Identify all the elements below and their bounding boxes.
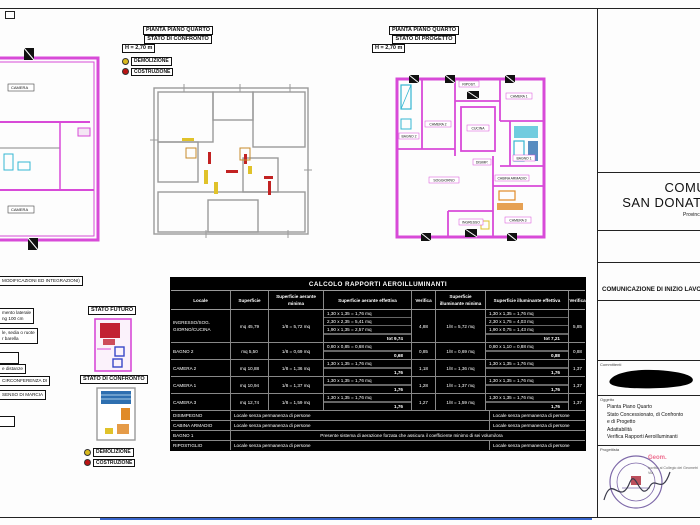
column-header: Superficie aerante effettiva [324, 291, 412, 309]
room-label-cabina-armadio: CABINA ARMADIO [497, 177, 526, 181]
legend-bottom: DEMOLIZIONE COSTRUZIONE [84, 446, 135, 467]
annotation-modifiche: MODIFICAZIONI ED INTEGRAZIONI) [0, 276, 83, 286]
plan-label-line2: STATO DI CONFRONTO [144, 35, 212, 44]
floorplan-confronto [148, 78, 316, 240]
plan-label-line1: PIANTA PIANO QUARTO [143, 26, 213, 35]
aero-table-title: CALCOLO RAPPORTI AEROILLUMINANTI [171, 278, 585, 291]
locale-cell: BAGNO 1 [171, 431, 231, 440]
plan-label-confronto: PIANTA PIANO QUARTO STATO DI CONFRONTO H… [122, 26, 234, 76]
annotation-b: le, sedia o ruoter barella [0, 328, 38, 344]
room-label-disimpegno: DISIMP. [476, 161, 488, 165]
table-row: RIPOSTIGLIOLocale senza permanenza di pe… [171, 441, 585, 450]
geom-name: Geom. [648, 455, 700, 461]
table-row: CABINA ARMADIOLocale senza permanenza di… [171, 421, 585, 431]
sheet-border-top [0, 8, 700, 9]
table-row: INGRESSO/SOG. GIORNO/CUCINAmq 45,791/8 =… [171, 310, 585, 343]
corner-mark-icon [5, 11, 15, 19]
oggetto-label: Oggetto [600, 397, 614, 402]
legend-costruzione-label: COSTRUZIONE [93, 459, 135, 468]
annotation-e: SENSO DI MARCIA [0, 390, 46, 400]
legend-demolizione: DEMOLIZIONE [84, 448, 135, 457]
table-row: CAMERA 1mq 10,941/8 = 1,37 mq1,30 x 1,35… [171, 377, 585, 394]
tb-divider [597, 230, 700, 231]
locale-cell: CAMERA 2 [171, 360, 231, 376]
pratica-title: COMUNICAZIONE DI INIZIO LAVORI [602, 286, 700, 293]
costruzione-dot-icon [84, 459, 91, 466]
room-label-camera: CAMERA [11, 207, 28, 212]
table-row: DISIMPEGNOLocale senza permanenza di per… [171, 411, 585, 421]
tb-divider [597, 172, 700, 173]
bottom-blue-line [100, 518, 592, 520]
column-header: Verifica [569, 291, 586, 309]
comune-header: COMUNE DI SAN DONATO MILANESE Provincia … [599, 180, 700, 218]
miniplan-stato-futuro [93, 317, 133, 373]
column-header: Superficie aerante minima [269, 291, 324, 309]
locale-cell: BAGNO 2 [171, 343, 231, 359]
room-label-camera1: CAMERA 1 [510, 95, 527, 99]
legend-demolizione-label: DEMOLIZIONE [131, 57, 172, 66]
room-label-camera2: CAMERA 2 [429, 123, 446, 127]
room-label-bagno1: BAGNO 1 [516, 157, 531, 161]
committenti-redaction [602, 366, 700, 392]
geom-info: Iscritto al Collegio dei Geometri Via [648, 466, 700, 476]
locale-cell: CAMERA 1 [171, 377, 231, 393]
tb-divider [597, 262, 700, 263]
tb-divider [597, 395, 700, 396]
table-row: CAMERA 2mq 10,881/8 = 1,36 mq1,30 x 1,35… [171, 360, 585, 377]
column-header: Locale [171, 291, 231, 309]
room-label-ripostiglio: RIPOST. [462, 83, 475, 87]
comune-line2: SAN DONATO MILANESE [599, 195, 700, 210]
annotation-a: mento lateraleng 100 cm [0, 308, 34, 324]
legend-costruzione: COSTRUZIONE [84, 459, 135, 468]
annotation-d: CIRCONFERENZA DI [0, 376, 50, 386]
legend-costruzione: COSTRUZIONE [122, 68, 234, 77]
column-header: Superficie [231, 291, 269, 309]
plan-label-line2: STATO DI PROGETTO [392, 35, 455, 44]
stato-confronto-label: STATO DI CONFRONTO [80, 375, 148, 384]
aero-table-body: INGRESSO/SOG. GIORNO/CUCINAmq 45,791/8 =… [171, 310, 585, 450]
oggetto-text: Pianta Piano Quarto Stato Concessionato,… [607, 404, 700, 442]
table-row: BAGNO 1Presente sistema di aerazione for… [171, 431, 585, 441]
plan-label-line3: H = 2,70 m [122, 44, 155, 53]
annotation-c: e distanze [0, 364, 26, 374]
room-label-soggiorno: SOGGIORNO [433, 179, 455, 183]
room-label-ingresso: INGRESSO [462, 221, 480, 225]
plan-label-line1: PIANTA PIANO QUARTO [389, 26, 459, 35]
room-label-bagno2: BAGNO 2 [401, 135, 416, 139]
miniplan-stato-confronto [95, 386, 137, 442]
plan-label-line3: H = 2,70 m [372, 44, 405, 53]
tb-divider [597, 445, 700, 446]
demolizione-dot-icon [84, 449, 91, 456]
locale-cell: CABINA ARMADIO [171, 421, 231, 430]
legend-costruzione-label: COSTRUZIONE [131, 68, 173, 77]
column-header: Superficie illuminante minima [436, 291, 486, 309]
annotation-small-box [0, 352, 19, 364]
progettista-stamp-icon [598, 452, 674, 514]
tb-divider [597, 360, 700, 361]
provincia-line: Provincia di Milano [599, 212, 700, 218]
demolizione-dot-icon [122, 58, 129, 65]
column-header: Superficie illuminante effettiva [486, 291, 569, 309]
locale-cell: DISIMPEGNO [171, 411, 231, 420]
comune-line1: COMUNE DI [599, 180, 700, 195]
aero-table: CALCOLO RAPPORTI AEROILLUMINANTI LocaleS… [170, 277, 586, 451]
room-label-cucina: CUCINA [472, 127, 486, 131]
table-row: CAMERA 3mq 12,741/8 = 1,59 mq1,30 x 1,35… [171, 394, 585, 411]
annotation-small-box2 [0, 416, 15, 427]
plan-label-progetto: PIANTA PIANO QUARTO STATO DI PROGETTO H … [372, 26, 476, 53]
costruzione-dot-icon [122, 68, 129, 75]
locale-cell: CAMERA 3 [171, 394, 231, 410]
legend-demolizione: DEMOLIZIONE [122, 57, 234, 66]
stato-futuro-label: STATO FUTURO [88, 306, 136, 315]
locale-cell: RIPOSTIGLIO [171, 441, 231, 450]
tb-divider [597, 300, 700, 301]
aero-table-header: LocaleSuperficieSuperficie aerante minim… [171, 291, 585, 310]
column-header: Verifica [412, 291, 436, 309]
floorplan-progetto: CAMERA 2 CAMERA 1 CUCINA SOGGIORNO CAMER… [393, 71, 549, 243]
room-label-camera: CAMERA [11, 85, 28, 90]
room-label-camera3: CAMERA 3 [509, 219, 526, 223]
titleblock-left-line [597, 8, 598, 518]
drawing-sheet: { "plan_labels": { "confronto": {"l1": "… [0, 0, 700, 525]
table-row: BAGNO 2mq 5,501/8 = 0,69 mq0,80 x 0,85 =… [171, 343, 585, 360]
legend-demolizione-label: DEMOLIZIONE [93, 448, 134, 457]
locale-cell: INGRESSO/SOG. GIORNO/CUCINA [171, 310, 231, 342]
floorplan-concessionato: CAMERA CAMERA [0, 44, 110, 254]
